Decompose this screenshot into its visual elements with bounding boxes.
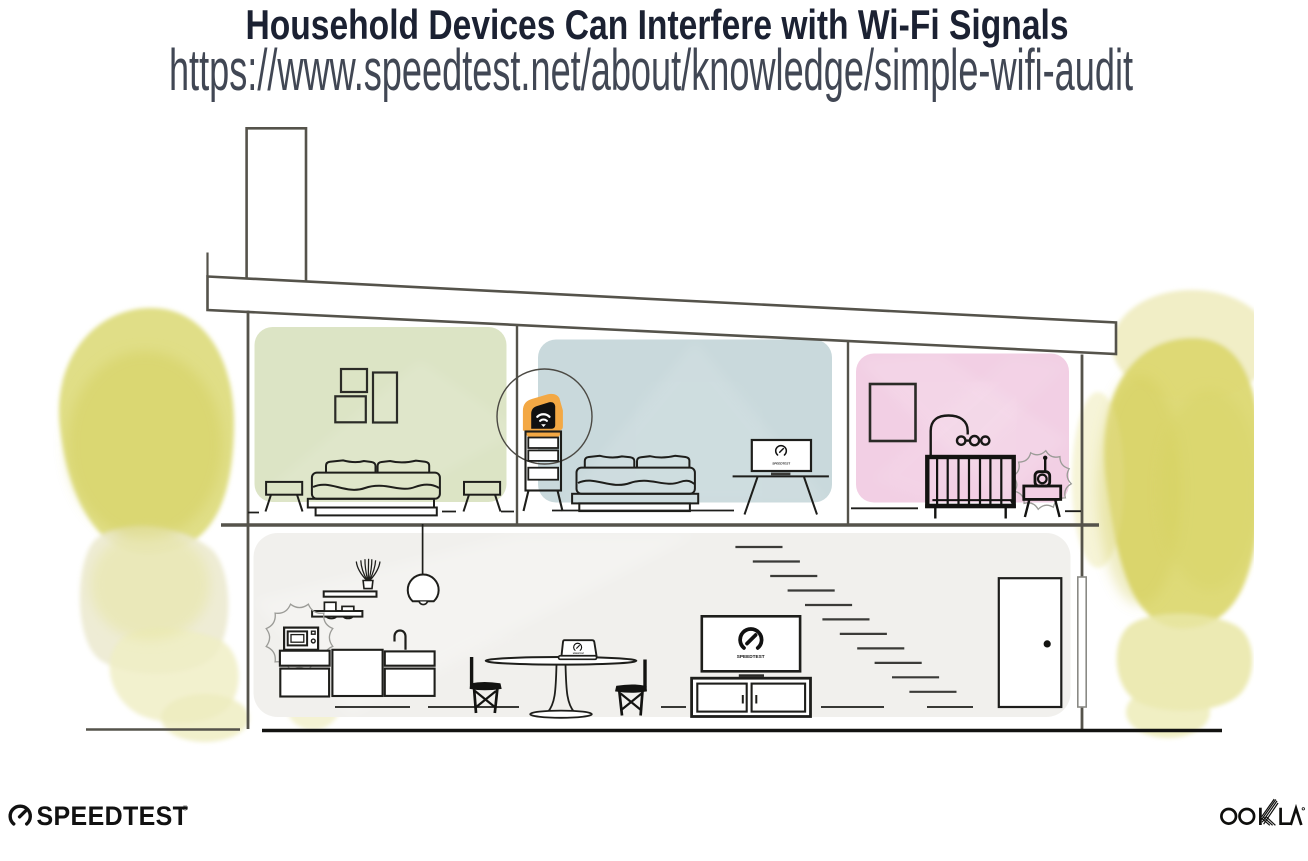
svg-text:SPEEDTEST: SPEEDTEST [737,654,765,659]
svg-text:SPEEDTEST: SPEEDTEST [772,462,790,466]
svg-text:SPEEDTEST: SPEEDTEST [573,653,585,655]
svg-text:SPEEDTEST: SPEEDTEST [37,800,189,831]
svg-text:®: ® [183,805,189,813]
